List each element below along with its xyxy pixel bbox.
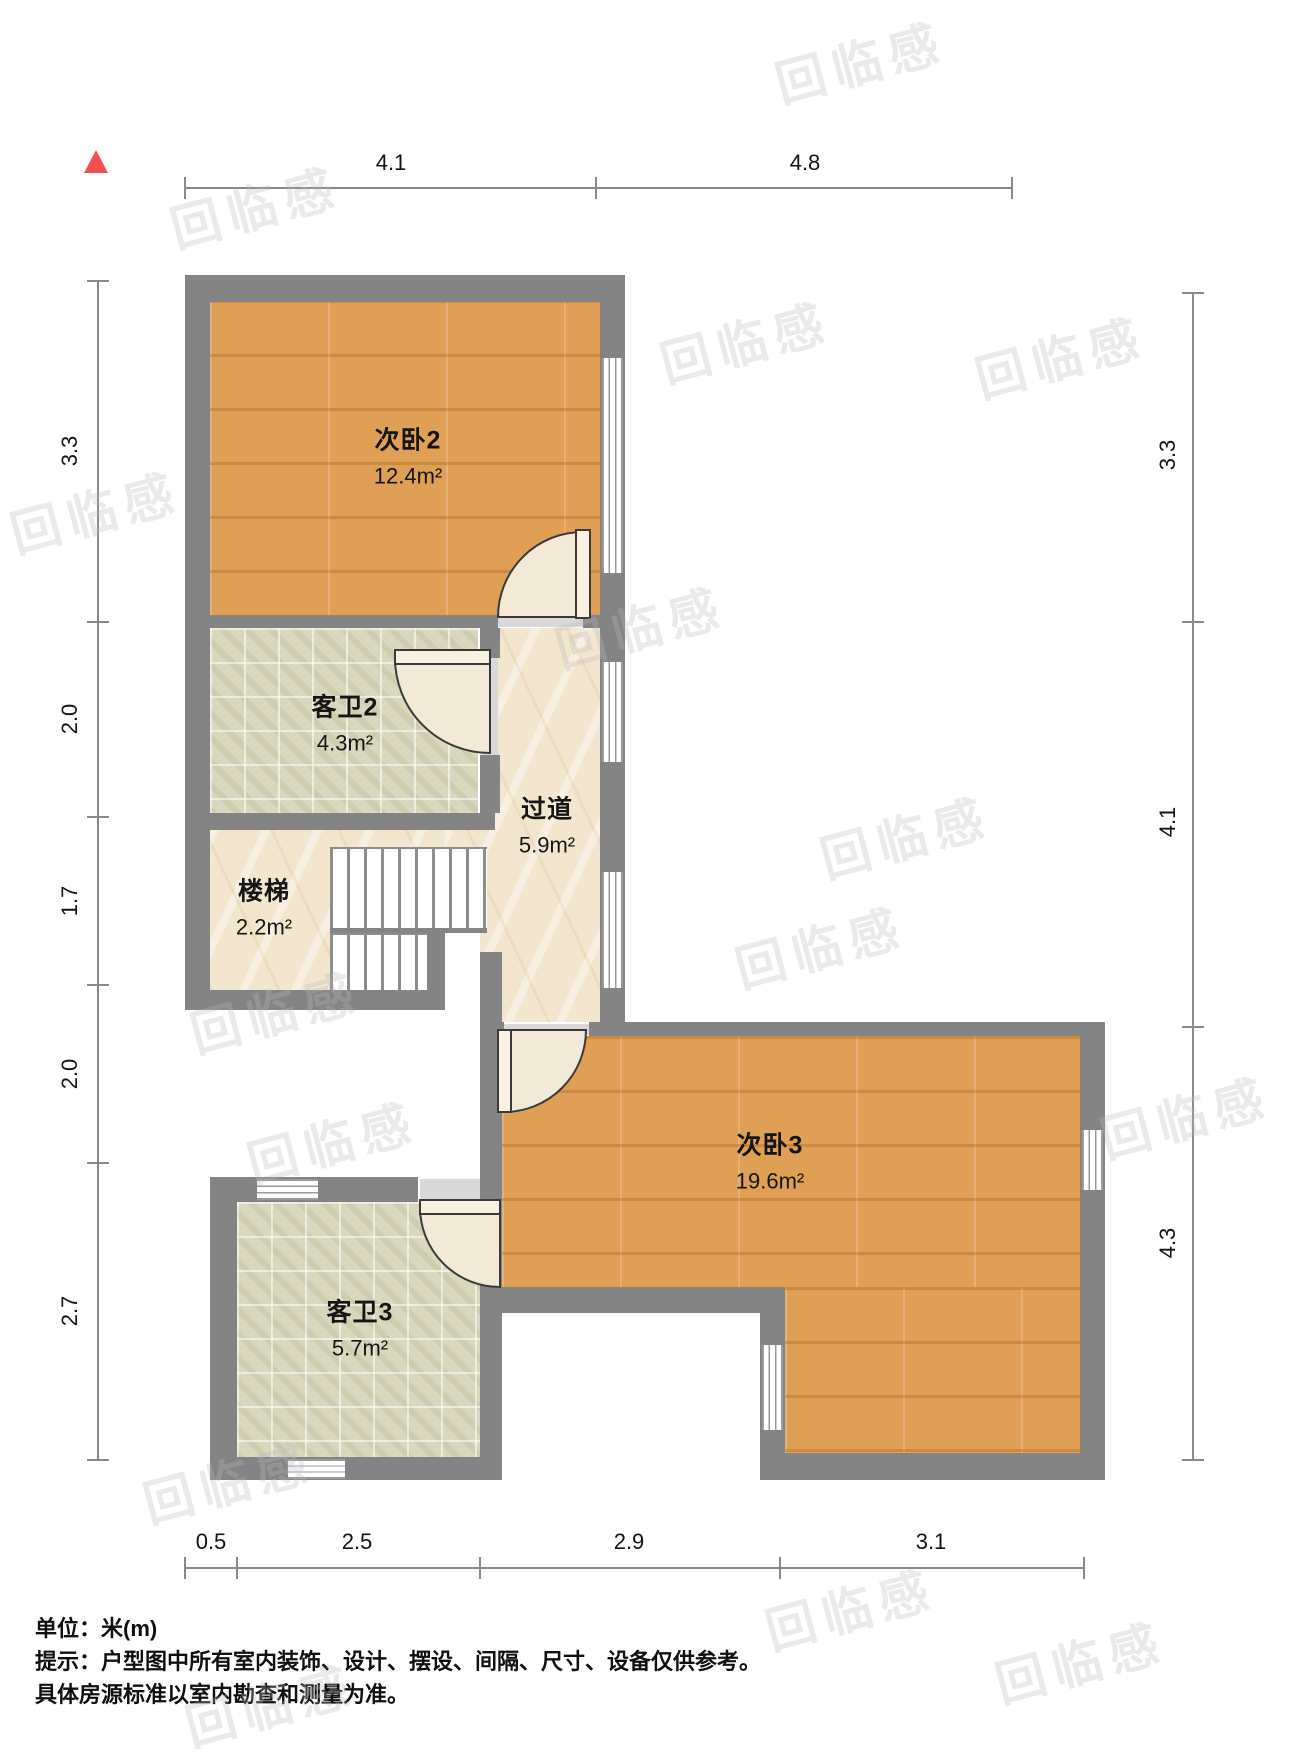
door-leaf-bedroom3 [498, 1030, 511, 1112]
note-unit: 单位：米(m) [35, 1612, 761, 1645]
door-leaf-bedroom2 [576, 530, 590, 618]
note-tip: 提示：户型图中所有室内装饰、设计、摆设、间隔、尺寸、设备仅供参考。 [35, 1645, 761, 1678]
dimension-tick [87, 984, 109, 986]
room-label-stairs: 楼梯 2.2m² [236, 872, 292, 941]
room-area: 12.4m² [374, 464, 442, 490]
dimension-label: 2.0 [57, 704, 83, 735]
dimension-line-right [1192, 293, 1194, 1460]
door-glyphs [0, 0, 1293, 1757]
door-arc-bath3 [420, 1207, 500, 1287]
dimension-label: 2.7 [57, 1296, 83, 1327]
room-name: 客卫2 [312, 688, 379, 724]
room-name: 次卧3 [736, 1126, 804, 1162]
dimension-tick [184, 1557, 186, 1579]
dimension-label: 4.8 [790, 150, 821, 176]
notes-block: 单位：米(m) 提示：户型图中所有室内装饰、设计、摆设、间隔、尺寸、设备仅供参考… [35, 1612, 761, 1711]
dimension-tick [236, 1557, 238, 1579]
dimension-label: 3.3 [57, 436, 83, 467]
dimension-tick [779, 1557, 781, 1579]
note-tip2: 具体房源标准以室内勘查和测量为准。 [35, 1678, 761, 1711]
dimension-tick [1182, 1026, 1204, 1028]
room-label-hallway: 过道 5.9m² [519, 790, 575, 859]
dimension-label: 4.3 [1155, 1228, 1181, 1259]
dimension-tick [479, 1557, 481, 1579]
dimension-label: 2.9 [614, 1529, 645, 1555]
door-leaf-bath2 [395, 650, 490, 664]
room-area: 5.9m² [519, 833, 575, 859]
dimension-line-bottom [185, 1567, 1085, 1569]
dimension-tick [87, 621, 109, 623]
floorplan-canvas: 次卧2 12.4m² 客卫2 4.3m² 过道 5.9m² 楼梯 2.2m² 次… [0, 0, 1293, 1757]
dimension-tick [87, 1162, 109, 1164]
dimension-tick [1182, 1459, 1204, 1461]
room-label-bath2: 客卫2 4.3m² [312, 688, 379, 757]
room-name: 次卧2 [374, 421, 442, 457]
dimension-tick [595, 177, 597, 199]
room-area: 5.7m² [327, 1336, 394, 1362]
door-arc-bath2 [395, 658, 490, 753]
room-name: 过道 [519, 790, 575, 826]
room-label-bath3: 客卫3 5.7m² [327, 1293, 394, 1362]
door-arc-bedroom2 [498, 532, 583, 617]
room-area: 19.6m² [736, 1169, 804, 1195]
dimension-tick [87, 1459, 109, 1461]
north-arrow-icon [84, 150, 108, 173]
dimension-tick [1182, 292, 1204, 294]
dimension-label: 2.5 [342, 1529, 373, 1555]
room-name: 楼梯 [236, 872, 292, 908]
room-label-bedroom3: 次卧3 19.6m² [736, 1126, 804, 1195]
dimension-tick [87, 280, 109, 282]
dimension-label: 3.1 [916, 1529, 947, 1555]
dimension-tick [87, 816, 109, 818]
room-label-bedroom2: 次卧2 12.4m² [374, 421, 442, 490]
dimension-label: 0.5 [196, 1529, 227, 1555]
room-name: 客卫3 [327, 1293, 394, 1329]
door-arc-bedroom3 [504, 1030, 586, 1112]
dimension-tick [184, 177, 186, 199]
dimension-tick [1011, 177, 1013, 199]
room-area: 2.2m² [236, 915, 292, 941]
dimension-line-left [97, 281, 99, 1460]
dimension-label: 4.1 [376, 150, 407, 176]
dimension-tick [1083, 1557, 1085, 1579]
dimension-label: 1.7 [57, 886, 83, 917]
dimension-line-top [185, 187, 1013, 189]
dimension-tick [1182, 621, 1204, 623]
dimension-label: 3.3 [1155, 440, 1181, 471]
door-leaf-bath3 [420, 1200, 500, 1214]
dimension-label: 4.1 [1155, 807, 1181, 838]
dimension-label: 2.0 [57, 1059, 83, 1090]
room-area: 4.3m² [312, 731, 379, 757]
